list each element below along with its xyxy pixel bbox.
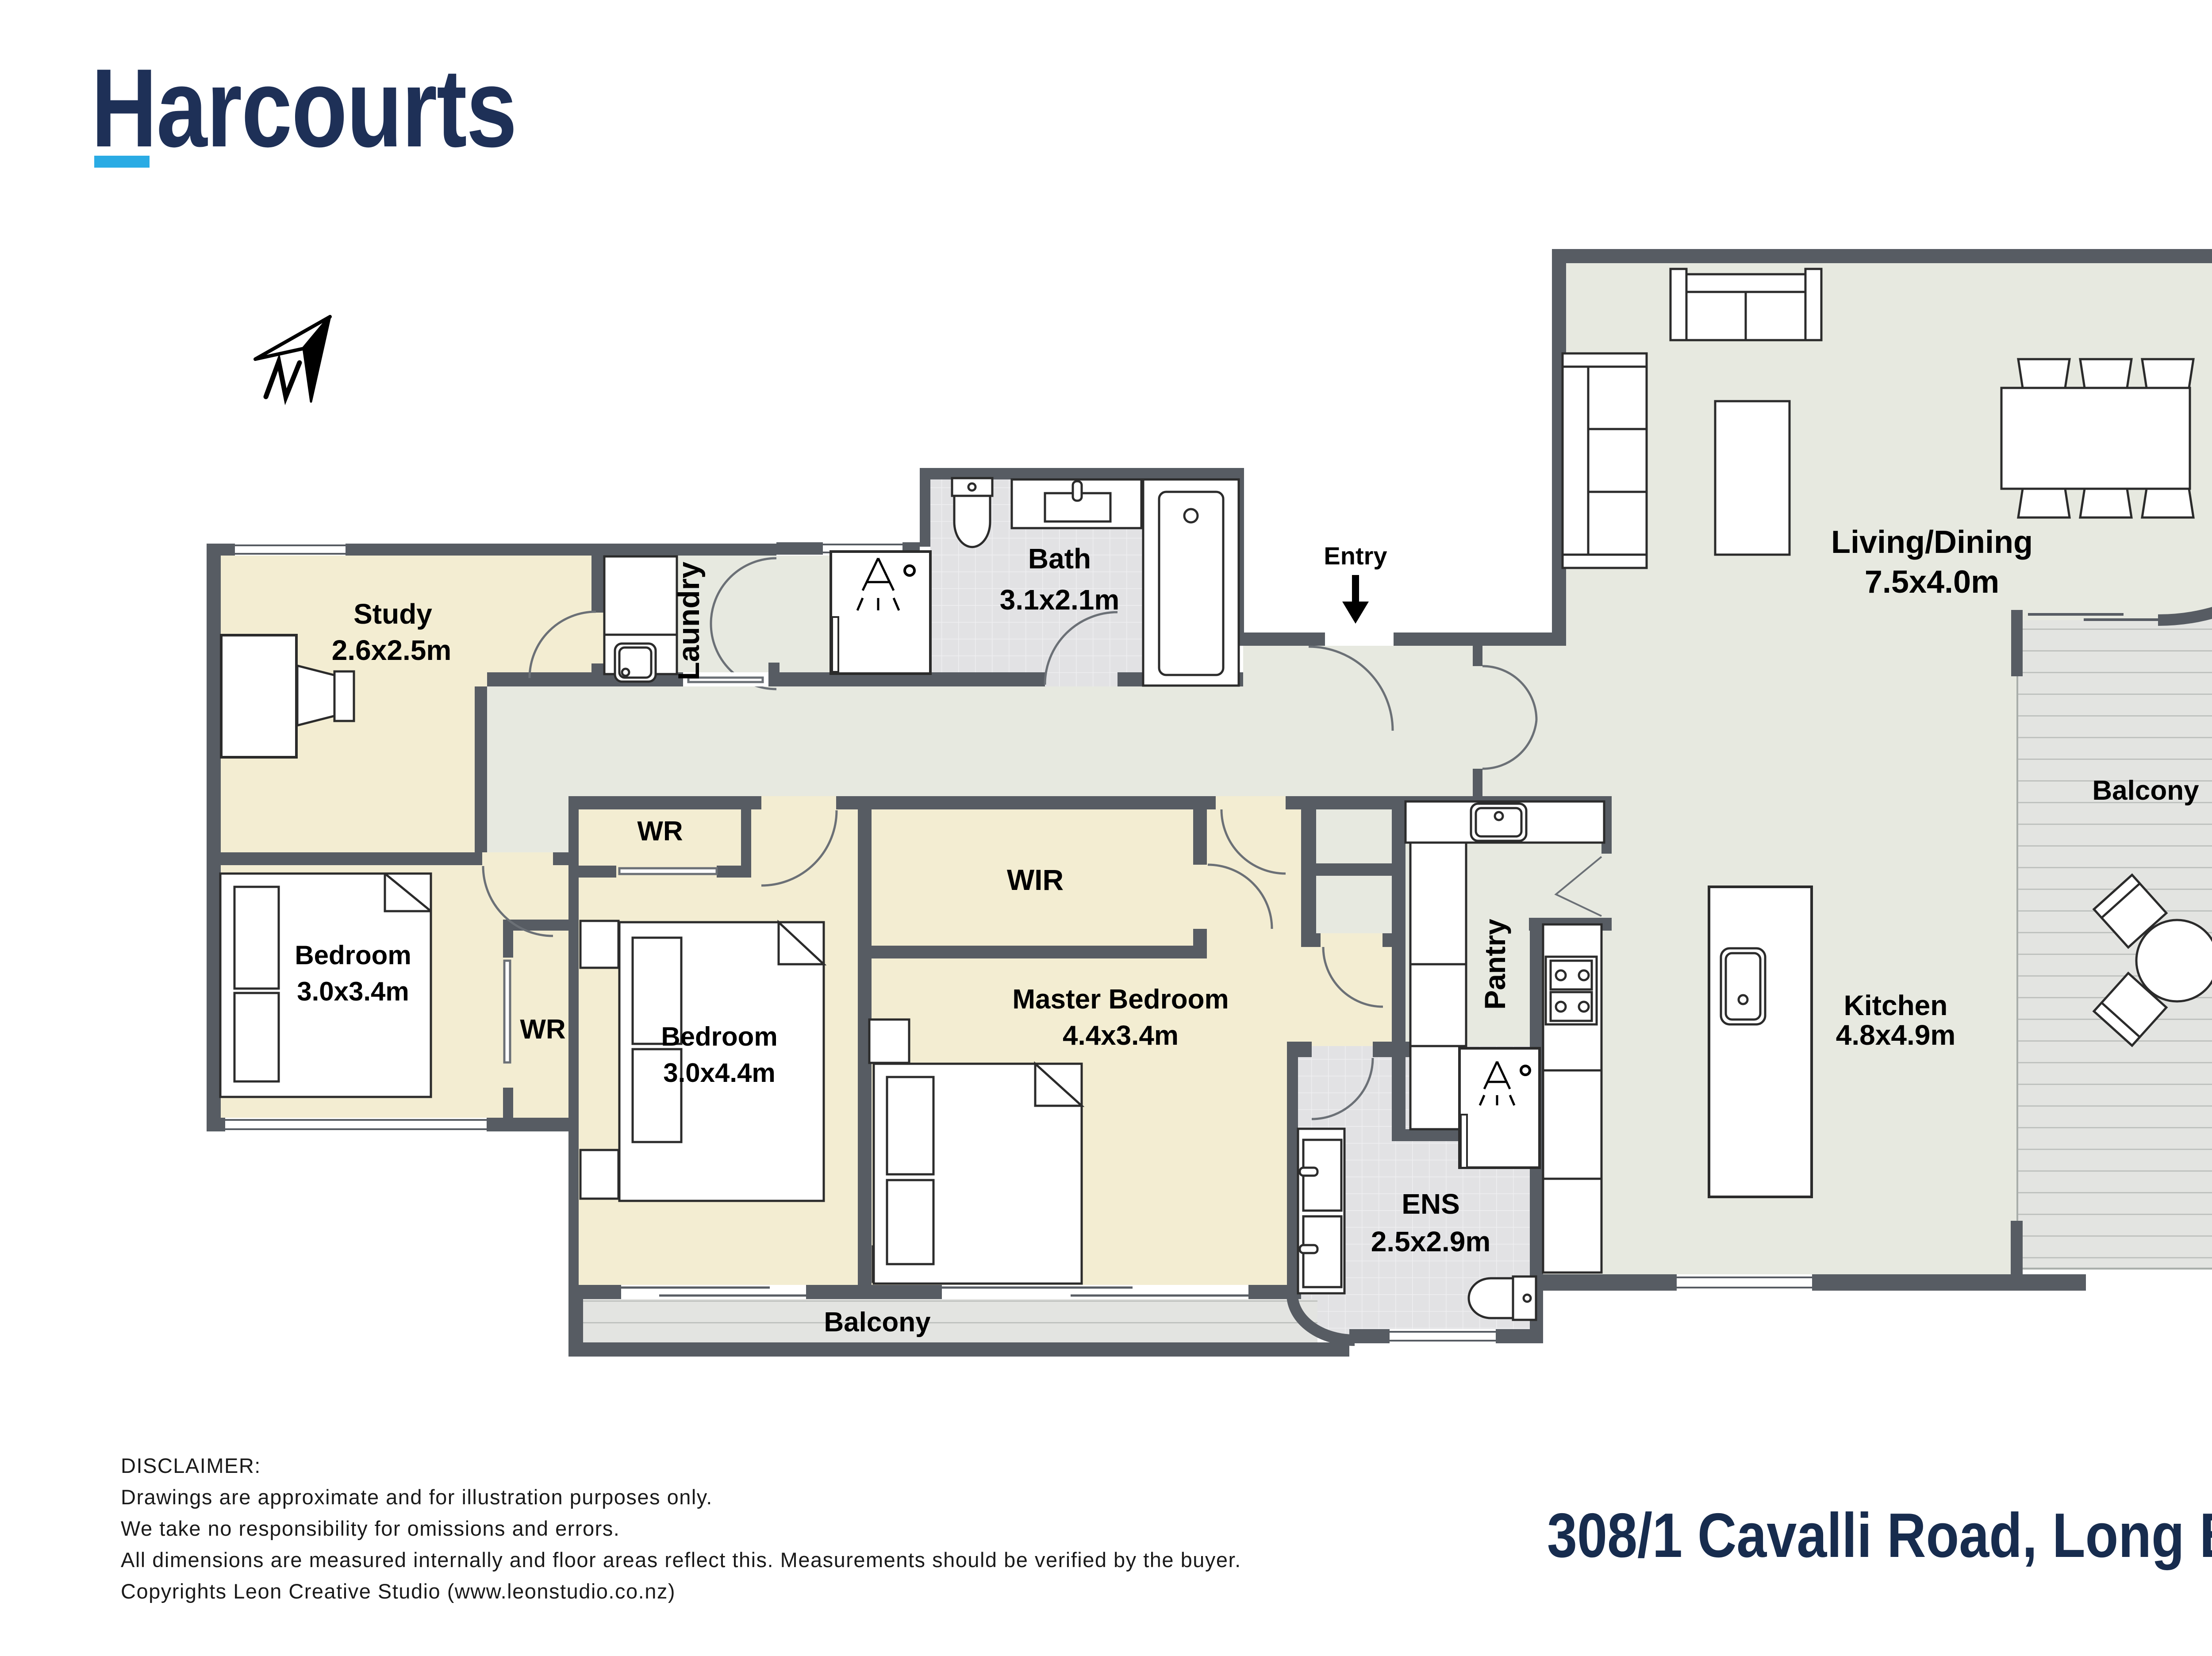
svg-text:Study: Study	[353, 598, 432, 630]
svg-text:2.6x2.5m: 2.6x2.5m	[332, 634, 451, 666]
svg-text:Laundry: Laundry	[672, 562, 706, 680]
svg-text:Harcourts: Harcourts	[91, 45, 516, 170]
svg-text:2.5x2.9m: 2.5x2.9m	[1371, 1226, 1490, 1257]
svg-text:We take no responsibility for: We take no responsibility for omissions …	[121, 1517, 620, 1540]
svg-text:Master Bedroom: Master Bedroom	[1012, 984, 1229, 1015]
svg-text:Entry: Entry	[1324, 542, 1387, 570]
svg-text:3.1x2.1m: 3.1x2.1m	[1000, 584, 1119, 616]
svg-text:7.5x4.0m: 7.5x4.0m	[1865, 564, 1999, 600]
svg-text:3.0x3.4m: 3.0x3.4m	[297, 977, 409, 1006]
svg-text:Kitchen: Kitchen	[1844, 989, 1948, 1021]
svg-text:Living/Dining: Living/Dining	[1831, 525, 2033, 560]
svg-text:WR: WR	[520, 1014, 565, 1045]
svg-text:Pantry: Pantry	[1479, 919, 1511, 1010]
svg-text:All dimensions are measured in: All dimensions are measured internally a…	[121, 1548, 1241, 1572]
svg-text:DISCLAIMER:: DISCLAIMER:	[121, 1454, 261, 1477]
svg-text:3.0x4.4m: 3.0x4.4m	[663, 1058, 776, 1088]
svg-text:4.8x4.9m: 4.8x4.9m	[1836, 1019, 1955, 1051]
svg-text:WR: WR	[637, 816, 683, 847]
svg-text:Copyrights Leon Creative Studi: Copyrights Leon Creative Studio (www.leo…	[121, 1579, 676, 1603]
svg-text:Bedroom: Bedroom	[295, 940, 411, 970]
svg-text:WIR: WIR	[1007, 863, 1064, 896]
svg-text:Drawings are approximate and f: Drawings are approximate and for illustr…	[121, 1485, 713, 1509]
svg-text:308/1 Cavalli Road, Long Bay: 308/1 Cavalli Road, Long Bay	[1547, 1500, 2212, 1571]
svg-text:4.4x3.4m: 4.4x3.4m	[1063, 1020, 1179, 1051]
svg-text:Bedroom: Bedroom	[661, 1022, 777, 1051]
svg-text:ENS: ENS	[1402, 1188, 1460, 1220]
svg-text:Balcony: Balcony	[2092, 775, 2199, 806]
svg-text:Balcony: Balcony	[824, 1307, 931, 1338]
svg-text:Bath: Bath	[1028, 543, 1091, 575]
